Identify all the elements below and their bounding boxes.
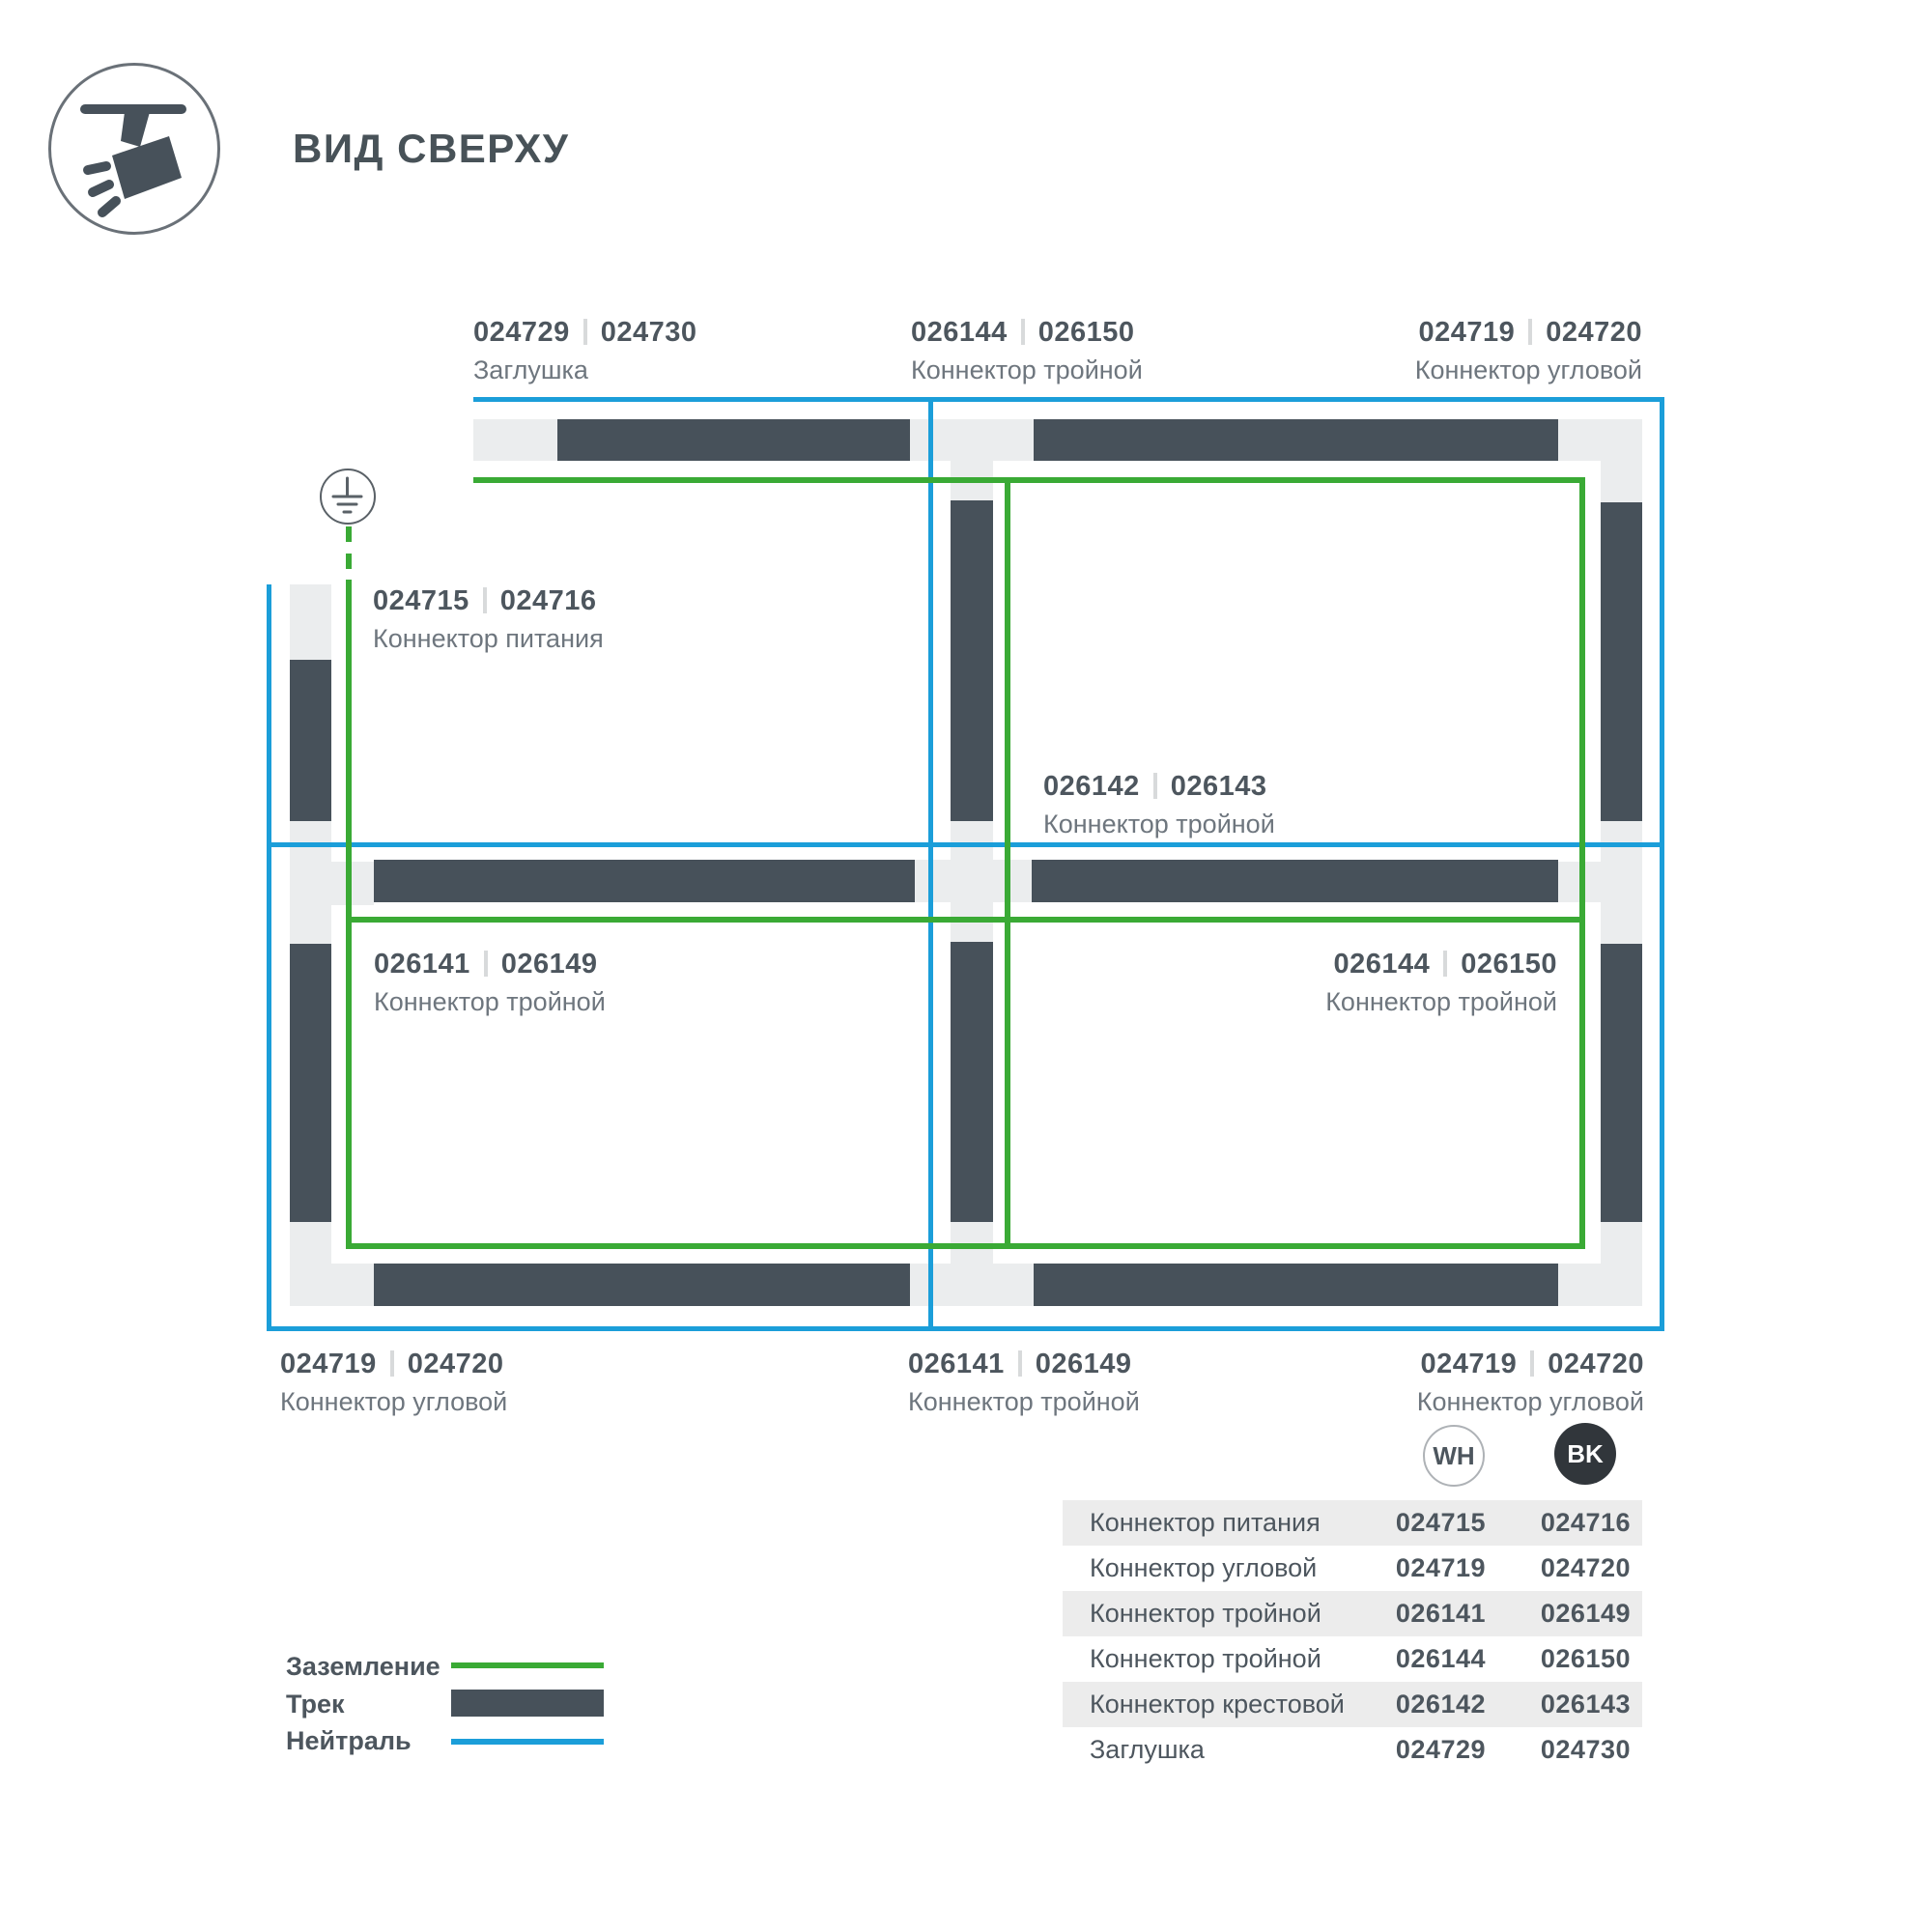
label-corner-connector-top-right: 024719024720 Коннектор угловой bbox=[1415, 317, 1642, 385]
label-name: Коннектор угловой bbox=[1417, 1387, 1644, 1417]
ground-line bbox=[473, 477, 1585, 483]
neutral-line bbox=[267, 1326, 1664, 1331]
label-cross-connector: 026142026143 Коннектор тройной bbox=[1043, 771, 1275, 839]
ground-line bbox=[1005, 477, 1010, 1249]
track-segment bbox=[374, 1264, 910, 1306]
divider bbox=[1528, 319, 1532, 345]
parts-table: Коннектор питания 024715 024716 Коннекто… bbox=[1063, 1500, 1642, 1773]
track-light-icon-glyph bbox=[51, 66, 217, 232]
corner-connector-piece bbox=[1558, 1264, 1601, 1306]
divider bbox=[1530, 1350, 1534, 1377]
neutral-line bbox=[928, 397, 933, 1331]
label-triple-connector-bottom: 026141026149 Коннектор тройной bbox=[908, 1349, 1140, 1417]
label-corner-connector-bottom-left: 024719024720 Коннектор угловой bbox=[280, 1349, 507, 1417]
track-segment bbox=[951, 500, 993, 821]
track-segment bbox=[374, 860, 915, 902]
legend-swatch-neutral bbox=[451, 1739, 604, 1745]
table-row: Коннектор тройной 026144 026150 bbox=[1063, 1636, 1642, 1682]
label-name: Коннектор тройной bbox=[1325, 987, 1557, 1017]
track-segment bbox=[951, 942, 993, 1222]
divider bbox=[1443, 951, 1447, 977]
label-codes: 026144026150 bbox=[911, 317, 1143, 349]
label-corner-connector-bottom-right: 024719024720 Коннектор угловой bbox=[1417, 1349, 1644, 1417]
ground-line bbox=[346, 580, 352, 1249]
label-name: Коннектор угловой bbox=[1415, 355, 1642, 385]
divider bbox=[1153, 773, 1157, 799]
divider bbox=[390, 1350, 394, 1377]
t-connector-piece bbox=[1601, 821, 1642, 944]
track-segment bbox=[1601, 502, 1642, 821]
label-power-connector: 024715024716 Коннектор питания bbox=[373, 585, 604, 654]
label-codes: 026141026149 bbox=[908, 1349, 1140, 1380]
label-triple-connector-mid-left: 026141026149 Коннектор тройной bbox=[374, 949, 606, 1017]
label-name: Коннектор угловой bbox=[280, 1387, 507, 1417]
neutral-line bbox=[267, 842, 1664, 847]
label-codes: 024729024730 bbox=[473, 317, 697, 349]
ground-line bbox=[346, 917, 1585, 923]
neutral-line bbox=[267, 584, 271, 1331]
label-codes: 024715024716 bbox=[373, 585, 604, 617]
track-segment bbox=[557, 419, 910, 461]
track-light-icon bbox=[48, 63, 220, 235]
color-badge-white: WH bbox=[1423, 1425, 1485, 1487]
track-segment bbox=[290, 660, 331, 821]
label-triple-connector-top: 026144026150 Коннектор тройной bbox=[911, 317, 1143, 385]
track-segment bbox=[290, 944, 331, 1222]
table-row: Коннектор крестовой 026142 026143 bbox=[1063, 1682, 1642, 1727]
neutral-line bbox=[1660, 397, 1664, 1331]
corner-connector-piece bbox=[1601, 1222, 1642, 1306]
legend-swatch-track bbox=[451, 1690, 604, 1717]
label-codes: 024719024720 bbox=[1415, 317, 1642, 349]
label-codes: 024719024720 bbox=[280, 1349, 507, 1380]
label-end-cap: 024729024730 Заглушка bbox=[473, 317, 697, 385]
track-segment bbox=[1034, 1264, 1558, 1306]
legend-label-neutral: Нейтраль bbox=[286, 1726, 412, 1756]
t-connector-piece bbox=[331, 862, 374, 905]
corner-connector-piece bbox=[1601, 461, 1642, 502]
ground-icon bbox=[320, 469, 376, 525]
ground-line bbox=[1579, 477, 1585, 1249]
corner-connector-piece bbox=[1558, 419, 1642, 461]
legend-swatch-ground bbox=[451, 1662, 604, 1668]
table-row: Заглушка 024729 024730 bbox=[1063, 1727, 1642, 1773]
track-segment bbox=[1032, 860, 1558, 902]
power-connector-piece bbox=[290, 584, 331, 660]
page-title: ВИД СВЕРХУ bbox=[293, 126, 569, 172]
label-name: Коннектор тройной bbox=[911, 355, 1143, 385]
divider bbox=[484, 951, 488, 977]
label-name: Заглушка bbox=[473, 355, 697, 385]
track-segment bbox=[1034, 419, 1558, 461]
table-row: Коннектор тройной 026141 026149 bbox=[1063, 1591, 1642, 1636]
divider bbox=[483, 587, 487, 613]
label-name: Коннектор тройной bbox=[908, 1387, 1140, 1417]
legend-label-ground: Заземление bbox=[286, 1652, 440, 1682]
divider bbox=[583, 319, 587, 345]
ground-icon-glyph bbox=[322, 470, 373, 522]
color-badge-black: BK bbox=[1554, 1423, 1616, 1485]
corner-connector-piece bbox=[290, 1222, 331, 1306]
t-connector-piece bbox=[290, 821, 331, 944]
label-codes: 026141026149 bbox=[374, 949, 606, 980]
label-codes: 026144026150 bbox=[1325, 949, 1557, 980]
label-name: Коннектор питания bbox=[373, 624, 604, 654]
label-triple-connector-mid-right: 026144026150 Коннектор тройной bbox=[1325, 949, 1557, 1017]
label-codes: 024719024720 bbox=[1417, 1349, 1644, 1380]
divider bbox=[1021, 319, 1025, 345]
neutral-line bbox=[473, 397, 1664, 402]
table-row: Коннектор питания 024715 024716 bbox=[1063, 1500, 1642, 1546]
ground-line bbox=[346, 1243, 1585, 1249]
label-name: Коннектор тройной bbox=[1043, 810, 1275, 839]
legend-label-track: Трек bbox=[286, 1690, 345, 1719]
top-view-diagram-page: ВИД СВЕРХУ bbox=[0, 0, 1932, 1932]
table-row: Коннектор угловой 024719 024720 bbox=[1063, 1546, 1642, 1591]
track-segment bbox=[1601, 944, 1642, 1222]
end-cap-piece bbox=[473, 419, 557, 461]
ground-line-dashed bbox=[346, 526, 352, 582]
label-codes: 026142026143 bbox=[1043, 771, 1275, 803]
label-name: Коннектор тройной bbox=[374, 987, 606, 1017]
divider bbox=[1018, 1350, 1022, 1377]
corner-connector-piece bbox=[331, 1264, 374, 1306]
